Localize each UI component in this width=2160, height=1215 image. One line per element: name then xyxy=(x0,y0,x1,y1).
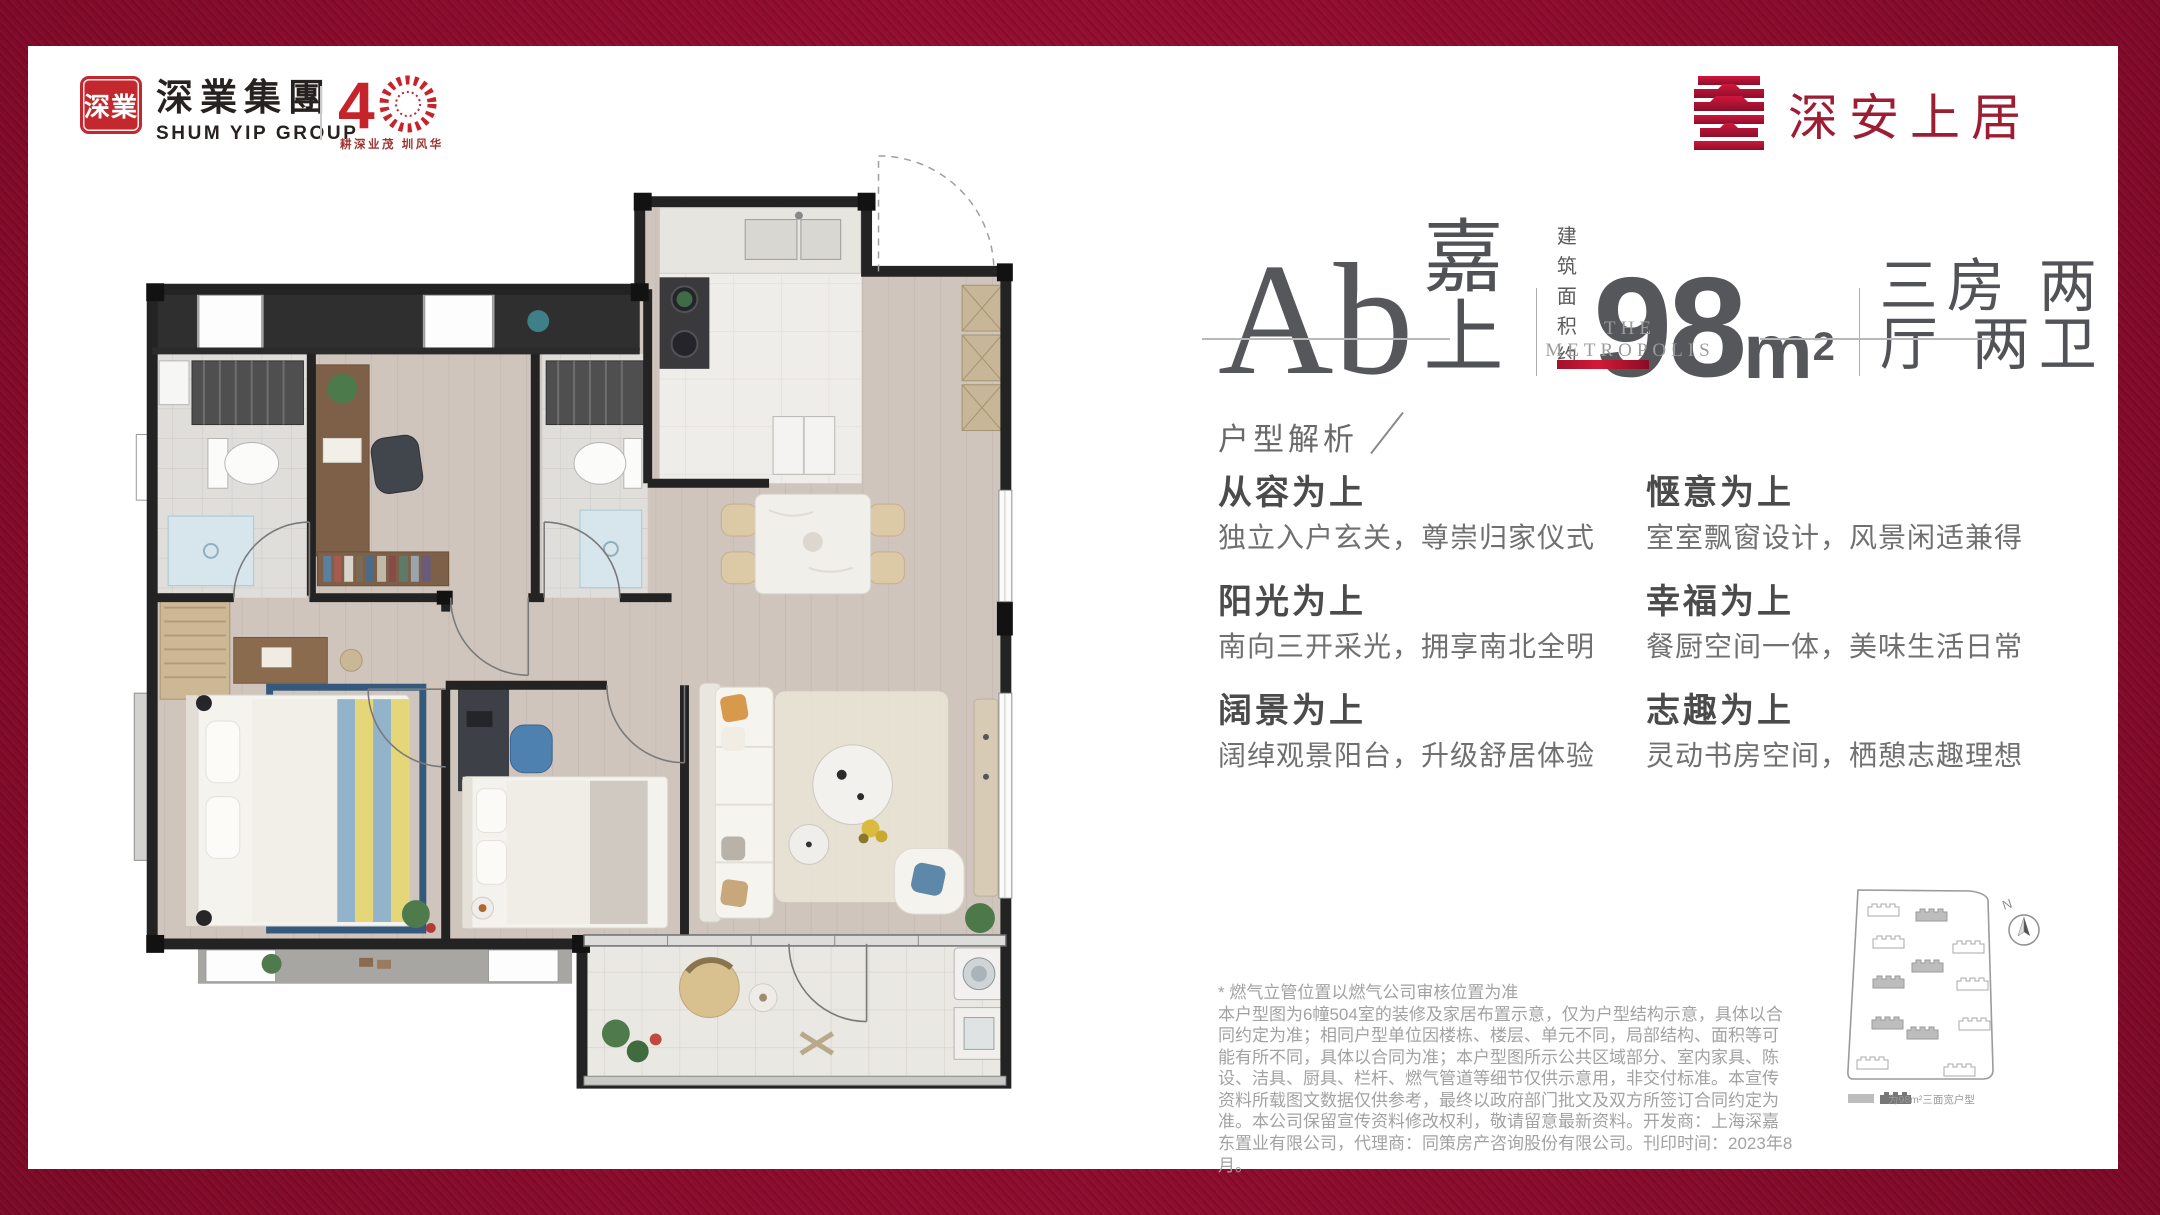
feature-desc: 室室飘窗设计，风景闲适兼得 xyxy=(1646,524,2074,552)
pillow xyxy=(477,789,507,833)
svg-text:4: 4 xyxy=(338,74,375,134)
sub-brand-line1: THE xyxy=(1490,318,1770,340)
shower-tray xyxy=(168,516,254,586)
pillow xyxy=(206,797,240,859)
legend-swatch xyxy=(1848,1094,1874,1103)
tv-console xyxy=(974,699,998,896)
pillow xyxy=(206,721,240,783)
entry-door-swing xyxy=(879,156,994,271)
plant-icon xyxy=(262,954,282,974)
pillow xyxy=(477,840,507,884)
feature-title: 幸福为上 xyxy=(1646,585,2074,619)
plant-icon xyxy=(602,1020,630,1048)
feature-desc: 独立入户玄关，尊崇归家仪式 xyxy=(1218,524,1646,552)
feature-column-right: 惬意为上 室室飘窗设计，风景闲适兼得 幸福为上 餐厨空间一体，美味生活日常 志趣… xyxy=(1646,476,2074,803)
balcony-slider xyxy=(584,935,1006,946)
toilet-icon xyxy=(225,442,279,484)
feature-desc: 灵动书房空间，栖憩志趣理想 xyxy=(1646,742,2074,770)
desk-chair xyxy=(510,725,552,773)
plant-icon xyxy=(327,374,357,404)
svg-text:N: N xyxy=(2000,896,2014,913)
seal-text: 深業 xyxy=(84,87,138,124)
brand-lockup: 深安上居 xyxy=(1694,76,2032,152)
feature-item: 志趣为上 灵动书房空间，栖憩志趣理想 xyxy=(1646,694,2074,770)
feature-desc: 南向三开采光，拥享南北全明 xyxy=(1218,633,1646,661)
legend-text: 为98m²三面宽户型 xyxy=(1888,1093,1975,1106)
feature-item: 惬意为上 室室飘窗设计，风景闲适兼得 xyxy=(1646,476,2074,552)
sub-brand: THE METROPOLIS xyxy=(1490,318,1770,362)
brand-mark-icon xyxy=(1694,76,1764,152)
slash-icon xyxy=(1370,411,1404,453)
office-chair xyxy=(369,433,424,495)
feature-desc: 阔绰观景阳台，升级舒居体验 xyxy=(1218,742,1646,770)
site-legend: 为98m²三面宽户型 xyxy=(1848,1092,1975,1106)
south-window-band xyxy=(198,948,572,984)
header-divider xyxy=(320,86,322,140)
entry-closet xyxy=(962,285,1002,430)
feature-item: 从容为上 独立入户玄关，尊崇归家仪式 xyxy=(1218,476,1646,552)
feature-title: 阳光为上 xyxy=(1218,585,1646,619)
shumyip-name-block: 深業集團 SHUM YIP GROUP xyxy=(156,80,359,145)
floor-plan xyxy=(110,140,1060,1125)
kitchen-sink xyxy=(745,220,797,260)
plant-icon xyxy=(402,900,430,928)
throw-pillow xyxy=(719,693,749,723)
disclaimer: * 燃气立管位置以燃气公司审核位置为准 本户型图为6幢504室的装修及家居布置示… xyxy=(1218,982,1793,1176)
analysis-heading-text: 户型解析 xyxy=(1218,414,1358,459)
unit-name-serif: Ab xyxy=(1218,257,1414,382)
feature-grid: 从容为上 独立入户玄关，尊崇归家仪式 阳光为上 南向三开采光，拥享南北全明 阔景… xyxy=(1218,476,2074,803)
balcony-railing xyxy=(584,1076,1006,1085)
red-accent-bar xyxy=(1557,360,1649,369)
coffee-table xyxy=(813,745,893,825)
feature-title: 志趣为上 xyxy=(1646,694,2074,728)
disclaimer-body: 本户型图为6幢504室的装修及家居布置示意，仅为户型结构示意，具体以合同约定为准… xyxy=(1218,1004,1793,1177)
sub-brand-rule-left xyxy=(1202,338,1450,340)
analysis-heading: 户型解析 xyxy=(1218,414,1388,459)
plant-icon xyxy=(965,903,995,933)
balcony-floor xyxy=(584,946,1004,1081)
north-window-band xyxy=(157,293,640,351)
feature-item: 阳光为上 南向三开采光，拥享南北全明 xyxy=(1218,585,1646,661)
site-plan: N 为98m²三面宽户型 xyxy=(1828,872,2078,1112)
shumyip-seal-icon: 深業 xyxy=(80,76,142,134)
feature-column-left: 从容为上 独立入户玄关，尊崇归家仪式 阳光为上 南向三开采光，拥享南北全明 阔景… xyxy=(1218,476,1646,803)
title-divider-2 xyxy=(1859,288,1860,376)
decor-crystal xyxy=(527,310,549,332)
feature-desc: 餐厨空间一体，美味生活日常 xyxy=(1646,633,2074,661)
sub-brand-rule-right xyxy=(1760,338,1992,340)
feature-item: 幸福为上 餐厨空间一体，美味生活日常 xyxy=(1646,585,2074,661)
toilet-icon xyxy=(574,442,626,484)
washbasin xyxy=(159,361,189,405)
feature-title: 惬意为上 xyxy=(1646,476,2074,510)
brand-name: 深安上居 xyxy=(1788,78,2032,150)
red-border-frame: 深業 深業集團 SHUM YIP GROUP 4 耕深业茂 圳风华 xyxy=(0,0,2160,1215)
wardrobe xyxy=(160,594,230,699)
shumyip-name-cn: 深業集團 xyxy=(156,80,359,117)
sub-brand-line2: METROPOLIS xyxy=(1490,340,1770,362)
shower-tray xyxy=(580,510,642,588)
feature-item: 阔景为上 阔绰观景阳台，升级舒居体验 xyxy=(1218,694,1646,770)
layout-text: 三房 两厅 两卫 xyxy=(1880,258,2118,382)
desk xyxy=(459,687,509,790)
feature-title: 从容为上 xyxy=(1218,476,1646,510)
compass-icon: N xyxy=(2000,896,2039,945)
area-label-line1: 建 筑 xyxy=(1557,222,1593,282)
area-superscript: 2 xyxy=(1813,325,1835,369)
disclaimer-note: * 燃气立管位置以燃气公司审核位置为准 xyxy=(1218,982,1793,1004)
feature-title: 阔景为上 xyxy=(1218,694,1646,728)
anniversary-40-icon: 4 xyxy=(338,74,448,134)
poster-card: 深業 深業集團 SHUM YIP GROUP 4 耕深业茂 圳风华 xyxy=(28,46,2118,1169)
